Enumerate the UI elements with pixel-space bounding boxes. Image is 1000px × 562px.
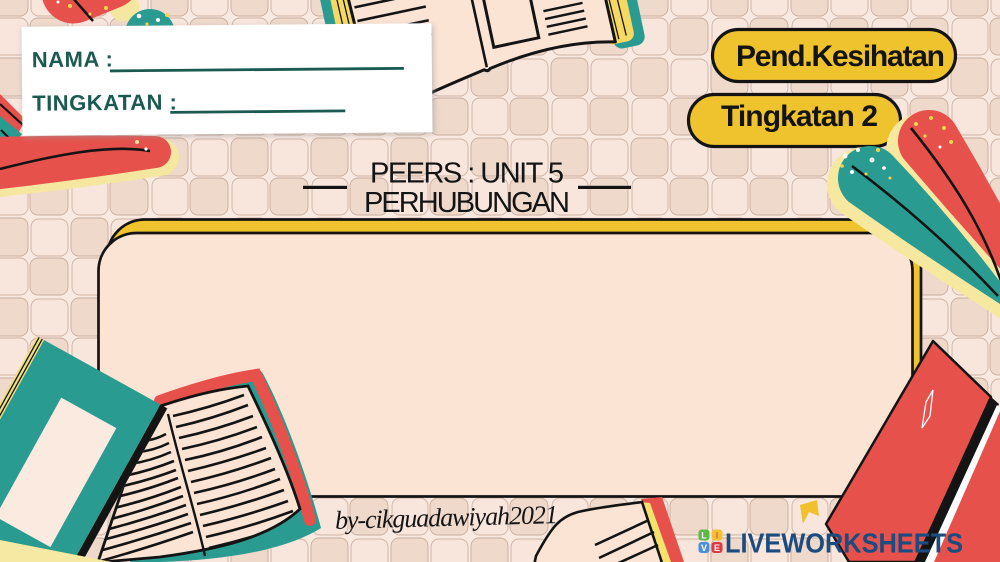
svg-text:V: V bbox=[701, 543, 707, 553]
svg-text:L: L bbox=[701, 531, 707, 541]
svg-text:E: E bbox=[714, 543, 720, 553]
svg-text:TINGKATAN :: TINGKATAN : bbox=[32, 89, 177, 115]
svg-text:NAMA :: NAMA : bbox=[32, 46, 114, 72]
svg-text:I: I bbox=[716, 531, 719, 541]
svg-text:Pend.Kesihatan: Pend.Kesihatan bbox=[736, 40, 945, 73]
svg-text:Tingkatan 2: Tingkatan 2 bbox=[721, 100, 878, 133]
svg-text:PEERS : UNIT 5: PEERS : UNIT 5 bbox=[370, 158, 564, 190]
svg-text:by-cikguadawiyah2021: by-cikguadawiyah2021 bbox=[335, 500, 559, 535]
svg-text:LIVEWORKSHEETS: LIVEWORKSHEETS bbox=[725, 528, 963, 559]
svg-text:PERHUBUNGAN: PERHUBUNGAN bbox=[364, 187, 570, 219]
